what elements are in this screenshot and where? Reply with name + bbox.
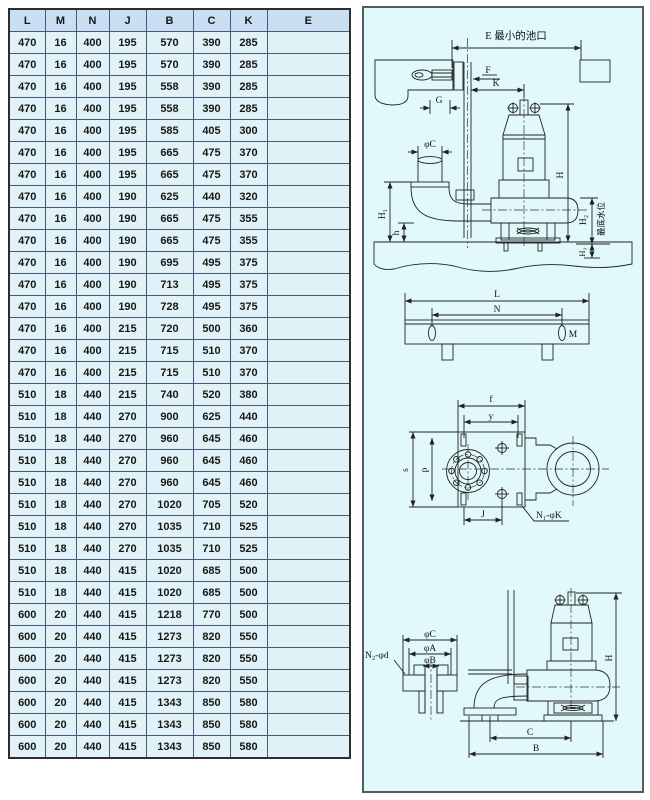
table-cell: 1343 <box>146 692 193 714</box>
table-cell <box>267 208 350 230</box>
table-row: 47016400215715510370 <box>9 340 350 362</box>
dim-label-f2: f <box>489 394 493 405</box>
table-row: 600204404151343850580 <box>9 714 350 736</box>
table-row: 47016400215720500360 <box>9 318 350 340</box>
col-header-J: J <box>109 9 146 32</box>
table-cell <box>267 714 350 736</box>
table-cell: 570 <box>146 54 193 76</box>
table-cell: 710 <box>193 538 230 560</box>
table-cell: 375 <box>230 274 267 296</box>
table-cell: 215 <box>109 340 146 362</box>
table-cell: 18 <box>45 428 76 450</box>
table-cell: 370 <box>230 142 267 164</box>
table-body: 4701640019557039028547016400195570390285… <box>9 32 350 759</box>
table-cell: 375 <box>230 296 267 318</box>
table-cell: 1020 <box>146 582 193 604</box>
table-cell: 195 <box>109 120 146 142</box>
table-cell: 1273 <box>146 648 193 670</box>
table-cell: 16 <box>45 54 76 76</box>
table-cell <box>267 516 350 538</box>
dim-label-p: p <box>420 467 430 472</box>
table-cell: 600 <box>9 670 45 692</box>
table-cell: 370 <box>230 362 267 384</box>
table-cell: 685 <box>193 560 230 582</box>
table-cell <box>267 318 350 340</box>
table-cell: 510 <box>9 516 45 538</box>
table-cell: 510 <box>9 582 45 604</box>
table-cell <box>267 384 350 406</box>
table-cell: 600 <box>9 648 45 670</box>
table-cell: 1020 <box>146 494 193 516</box>
table-cell <box>267 340 350 362</box>
table-cell: 440 <box>76 692 109 714</box>
table-cell: 510 <box>9 494 45 516</box>
table-cell: 510 <box>9 450 45 472</box>
table-cell: 440 <box>230 406 267 428</box>
col-header-B: B <box>146 9 193 32</box>
table-cell: 370 <box>230 164 267 186</box>
table-cell: 705 <box>193 494 230 516</box>
table-cell: 600 <box>9 692 45 714</box>
table-cell: 715 <box>146 340 193 362</box>
dim-label-g: G <box>436 96 443 106</box>
table-cell: 470 <box>9 186 45 208</box>
table-cell: 16 <box>45 120 76 142</box>
dim-label-k: K <box>493 79 500 89</box>
table-cell: 850 <box>193 714 230 736</box>
table-row: 600204404151273820550 <box>9 648 350 670</box>
table-cell: 440 <box>76 428 109 450</box>
table-cell: 270 <box>109 494 146 516</box>
table-cell: 500 <box>230 560 267 582</box>
table-cell: 270 <box>109 472 146 494</box>
table-cell <box>267 538 350 560</box>
table-cell: 475 <box>193 208 230 230</box>
table-row: 47016400215715510370 <box>9 362 350 384</box>
table-cell: 525 <box>230 516 267 538</box>
table-cell: 400 <box>76 318 109 340</box>
table-cell: 460 <box>230 472 267 494</box>
table-cell: 1273 <box>146 626 193 648</box>
table-cell <box>267 186 350 208</box>
table-cell: 16 <box>45 362 76 384</box>
table-cell: 720 <box>146 318 193 340</box>
table-cell: 1218 <box>146 604 193 626</box>
table-cell: 195 <box>109 76 146 98</box>
table-cell: 415 <box>109 670 146 692</box>
table-cell: 850 <box>193 736 230 759</box>
table-cell: 18 <box>45 516 76 538</box>
table-cell: 645 <box>193 450 230 472</box>
table-cell: 195 <box>109 54 146 76</box>
table-cell: 1035 <box>146 538 193 560</box>
dim-label-c: C <box>527 728 533 738</box>
table-cell: 510 <box>193 362 230 384</box>
table-cell: 520 <box>193 384 230 406</box>
table-row: 600204404151273820550 <box>9 626 350 648</box>
table-cell: 215 <box>109 318 146 340</box>
table-cell: 16 <box>45 318 76 340</box>
table-cell: 600 <box>9 714 45 736</box>
table-cell: 20 <box>45 692 76 714</box>
table-cell: 390 <box>193 32 230 54</box>
dim-label-b: B <box>533 744 539 754</box>
table-row: 47016400190625440320 <box>9 186 350 208</box>
table-cell: 370 <box>230 340 267 362</box>
table-row: 510184402701020705520 <box>9 494 350 516</box>
dim-label-phic2: φC <box>424 630 436 640</box>
table-cell: 390 <box>193 54 230 76</box>
table-cell <box>267 582 350 604</box>
table-cell: 500 <box>230 582 267 604</box>
table-cell: 510 <box>9 538 45 560</box>
table-cell: 510 <box>9 560 45 582</box>
table-cell: 285 <box>230 76 267 98</box>
table-cell: 285 <box>230 98 267 120</box>
dim-label-s: s <box>401 468 411 472</box>
table-cell: 470 <box>9 164 45 186</box>
table-cell: 16 <box>45 32 76 54</box>
table-cell: 470 <box>9 142 45 164</box>
dimension-table: L M N J B C K E 470164001955703902854701… <box>8 8 351 759</box>
table-cell: 20 <box>45 670 76 692</box>
table-cell <box>267 626 350 648</box>
table-cell: 470 <box>9 296 45 318</box>
table-cell: 400 <box>76 252 109 274</box>
dim-label-n1-phik: N₁-φK <box>536 511 562 521</box>
table-cell <box>267 648 350 670</box>
table-cell: 285 <box>230 54 267 76</box>
table-cell: 270 <box>109 516 146 538</box>
table-cell: 470 <box>9 230 45 252</box>
table-cell: 20 <box>45 604 76 626</box>
table-cell <box>267 428 350 450</box>
table-cell: 710 <box>193 516 230 538</box>
table-cell: 820 <box>193 648 230 670</box>
table-row: 51018440270960645460 <box>9 428 350 450</box>
table-cell: 20 <box>45 714 76 736</box>
dimension-table-wrap: L M N J B C K E 470164001955703902854701… <box>8 8 351 759</box>
table-cell: 695 <box>146 252 193 274</box>
table-cell: 190 <box>109 208 146 230</box>
table-cell: 470 <box>9 120 45 142</box>
table-row: 47016400195558390285 <box>9 98 350 120</box>
table-cell: 18 <box>45 384 76 406</box>
table-cell: 400 <box>76 32 109 54</box>
table-cell: 18 <box>45 494 76 516</box>
table-cell: 16 <box>45 142 76 164</box>
table-cell: 1020 <box>146 560 193 582</box>
table-cell: 440 <box>76 582 109 604</box>
plan-view-drawing: f y s p <box>401 394 609 525</box>
table-cell: 580 <box>230 714 267 736</box>
table-cell: 415 <box>109 560 146 582</box>
table-row: 47016400195665475370 <box>9 164 350 186</box>
table-cell: 728 <box>146 296 193 318</box>
table-row: 510184404151020685500 <box>9 582 350 604</box>
col-header-E: E <box>267 9 350 32</box>
dim-label-h2: H₂ <box>579 215 589 225</box>
table-cell: 440 <box>76 626 109 648</box>
table-cell <box>267 406 350 428</box>
table-header-row: L M N J B C K E <box>9 9 350 32</box>
table-cell: 475 <box>193 230 230 252</box>
table-cell: 270 <box>109 428 146 450</box>
table-cell: 850 <box>193 692 230 714</box>
table-cell: 470 <box>9 274 45 296</box>
table-cell: 440 <box>193 186 230 208</box>
col-header-N: N <box>76 9 109 32</box>
dim-label-l: L <box>494 290 500 300</box>
table-cell <box>267 296 350 318</box>
table-row: 47016400195570390285 <box>9 54 350 76</box>
mounting-plate-drawing: L N M <box>405 290 589 360</box>
table-cell: 960 <box>146 428 193 450</box>
table-cell <box>267 230 350 252</box>
table-cell <box>267 472 350 494</box>
table-cell: 470 <box>9 208 45 230</box>
table-cell: 1343 <box>146 736 193 759</box>
table-cell: 1035 <box>146 516 193 538</box>
table-cell: 470 <box>9 32 45 54</box>
table-cell: 16 <box>45 186 76 208</box>
table-cell: 625 <box>146 186 193 208</box>
table-row: 47016400195570390285 <box>9 32 350 54</box>
table-cell <box>267 274 350 296</box>
table-cell: 18 <box>45 560 76 582</box>
col-header-M: M <box>45 9 76 32</box>
table-row: 47016400190695495375 <box>9 252 350 274</box>
drawing-panel: E 最小的池口 F K G φC <box>362 6 644 793</box>
table-cell: 558 <box>146 98 193 120</box>
dim-label-H: H <box>556 171 566 178</box>
table-cell: 400 <box>76 98 109 120</box>
table-cell: 400 <box>76 296 109 318</box>
table-row: 510184402701035710525 <box>9 516 350 538</box>
table-cell: 520 <box>230 494 267 516</box>
dim-label-n2-phid: N₂-φd <box>365 651 389 661</box>
col-header-L: L <box>9 9 45 32</box>
table-cell: 415 <box>109 582 146 604</box>
col-header-K: K <box>230 9 267 32</box>
table-cell: 475 <box>193 164 230 186</box>
table-row: 51018440270900625440 <box>9 406 350 428</box>
table-cell: 1343 <box>146 714 193 736</box>
table-cell: 550 <box>230 626 267 648</box>
table-cell: 580 <box>230 692 267 714</box>
table-cell: 415 <box>109 736 146 759</box>
table-cell: 470 <box>9 76 45 98</box>
table-cell <box>267 450 350 472</box>
table-cell: 18 <box>45 472 76 494</box>
table-cell: 405 <box>193 120 230 142</box>
table-cell: 440 <box>76 670 109 692</box>
table-cell: 190 <box>109 186 146 208</box>
table-cell: 400 <box>76 76 109 98</box>
table-cell: 585 <box>146 120 193 142</box>
dim-label-phia: φA <box>424 644 436 654</box>
table-cell: 415 <box>109 626 146 648</box>
table-cell: 440 <box>76 538 109 560</box>
table-cell: 390 <box>193 76 230 98</box>
table-row: 47016400195585405300 <box>9 120 350 142</box>
table-cell: 960 <box>146 472 193 494</box>
table-cell: 400 <box>76 362 109 384</box>
table-cell: 550 <box>230 648 267 670</box>
dim-label-pool-opening: E 最小的池口 <box>485 29 547 42</box>
table-cell: 1273 <box>146 670 193 692</box>
table-cell <box>267 164 350 186</box>
table-cell: 510 <box>9 472 45 494</box>
table-cell: 195 <box>109 32 146 54</box>
dim-label-h3: H₃ <box>577 247 587 256</box>
table-cell: 440 <box>76 604 109 626</box>
table-cell: 470 <box>9 318 45 340</box>
table-row: 47016400195665475370 <box>9 142 350 164</box>
dim-label-phib: φB <box>424 656 436 666</box>
table-cell: 665 <box>146 230 193 252</box>
table-cell: 270 <box>109 450 146 472</box>
table-cell: 400 <box>76 230 109 252</box>
table-cell: 400 <box>76 54 109 76</box>
table-cell: 525 <box>230 538 267 560</box>
table-cell: 18 <box>45 450 76 472</box>
table-row: 51018440270960645460 <box>9 472 350 494</box>
table-cell: 415 <box>109 714 146 736</box>
table-row: 51018440270960645460 <box>9 450 350 472</box>
table-cell <box>267 560 350 582</box>
table-cell: 16 <box>45 76 76 98</box>
table-cell: 400 <box>76 186 109 208</box>
table-cell: 190 <box>109 252 146 274</box>
table-row: 51018440215740520380 <box>9 384 350 406</box>
table-cell: 470 <box>9 252 45 274</box>
table-cell: 470 <box>9 54 45 76</box>
table-cell: 16 <box>45 164 76 186</box>
dim-label-phic: φC <box>424 140 436 150</box>
table-row: 47016400195558390285 <box>9 76 350 98</box>
table-cell: 900 <box>146 406 193 428</box>
table-cell: 270 <box>109 406 146 428</box>
table-cell: 440 <box>76 648 109 670</box>
table-cell: 440 <box>76 494 109 516</box>
table-row: 47016400190665475355 <box>9 230 350 252</box>
table-cell: 580 <box>230 736 267 759</box>
table-cell <box>267 120 350 142</box>
table-cell: 360 <box>230 318 267 340</box>
table-cell: 740 <box>146 384 193 406</box>
table-cell: 415 <box>109 604 146 626</box>
table-cell: 510 <box>9 406 45 428</box>
table-cell: 355 <box>230 230 267 252</box>
table-cell: 510 <box>193 340 230 362</box>
table-row: 47016400190713495375 <box>9 274 350 296</box>
table-cell: 415 <box>109 648 146 670</box>
table-row: 510184402701035710525 <box>9 538 350 560</box>
table-cell <box>267 736 350 759</box>
table-row: 600204404151343850580 <box>9 736 350 759</box>
table-cell: 600 <box>9 626 45 648</box>
table-cell: 440 <box>76 560 109 582</box>
table-cell: 495 <box>193 296 230 318</box>
table-cell: 440 <box>76 406 109 428</box>
installation-drawing: E 最小的池口 F K G φC <box>374 29 632 271</box>
dim-label-lowest-water: 最底水位 <box>596 202 606 237</box>
table-cell: 475 <box>193 142 230 164</box>
table-cell: 820 <box>193 670 230 692</box>
table-row: 510184404151020685500 <box>9 560 350 582</box>
table-cell <box>267 252 350 274</box>
table-cell: 500 <box>193 318 230 340</box>
table-cell: 665 <box>146 142 193 164</box>
table-cell: 770 <box>193 604 230 626</box>
table-cell: 600 <box>9 736 45 759</box>
table-cell: 510 <box>9 384 45 406</box>
table-cell: 195 <box>109 142 146 164</box>
table-cell: 380 <box>230 384 267 406</box>
table-cell <box>267 54 350 76</box>
table-cell: 16 <box>45 274 76 296</box>
dim-label-H2: H <box>605 654 615 661</box>
side-view-drawing: φC φA φB N₂-φd <box>365 588 622 758</box>
table-cell: 285 <box>230 32 267 54</box>
table-cell: 960 <box>146 450 193 472</box>
table-cell: 270 <box>109 538 146 560</box>
table-row: 600204404151218770500 <box>9 604 350 626</box>
table-cell: 715 <box>146 362 193 384</box>
table-cell: 190 <box>109 230 146 252</box>
table-cell: 645 <box>193 472 230 494</box>
table-cell: 16 <box>45 208 76 230</box>
table-cell: 460 <box>230 450 267 472</box>
table-cell: 645 <box>193 428 230 450</box>
table-cell: 510 <box>9 428 45 450</box>
table-cell: 440 <box>76 384 109 406</box>
table-cell <box>267 362 350 384</box>
table-cell: 685 <box>193 582 230 604</box>
table-cell: 355 <box>230 208 267 230</box>
table-cell: 415 <box>109 692 146 714</box>
table-cell: 18 <box>45 538 76 560</box>
table-cell: 20 <box>45 736 76 759</box>
table-cell: 820 <box>193 626 230 648</box>
table-cell: 16 <box>45 252 76 274</box>
dim-label-h: h <box>392 230 402 235</box>
table-cell: 190 <box>109 296 146 318</box>
table-cell <box>267 692 350 714</box>
table-cell: 18 <box>45 406 76 428</box>
table-cell: 400 <box>76 120 109 142</box>
table-cell: 400 <box>76 340 109 362</box>
table-row: 47016400190665475355 <box>9 208 350 230</box>
table-cell: 215 <box>109 384 146 406</box>
table-cell: 320 <box>230 186 267 208</box>
table-cell: 16 <box>45 98 76 120</box>
table-cell: 400 <box>76 208 109 230</box>
table-cell: 500 <box>230 604 267 626</box>
table-cell: 470 <box>9 340 45 362</box>
table-cell <box>267 32 350 54</box>
table-cell: 16 <box>45 296 76 318</box>
table-cell <box>267 670 350 692</box>
table-cell: 665 <box>146 164 193 186</box>
table-cell: 550 <box>230 670 267 692</box>
table-cell: 400 <box>76 274 109 296</box>
table-cell: 440 <box>76 450 109 472</box>
table-cell: 440 <box>76 736 109 759</box>
dim-label-y: y <box>489 412 494 422</box>
table-cell: 18 <box>45 582 76 604</box>
